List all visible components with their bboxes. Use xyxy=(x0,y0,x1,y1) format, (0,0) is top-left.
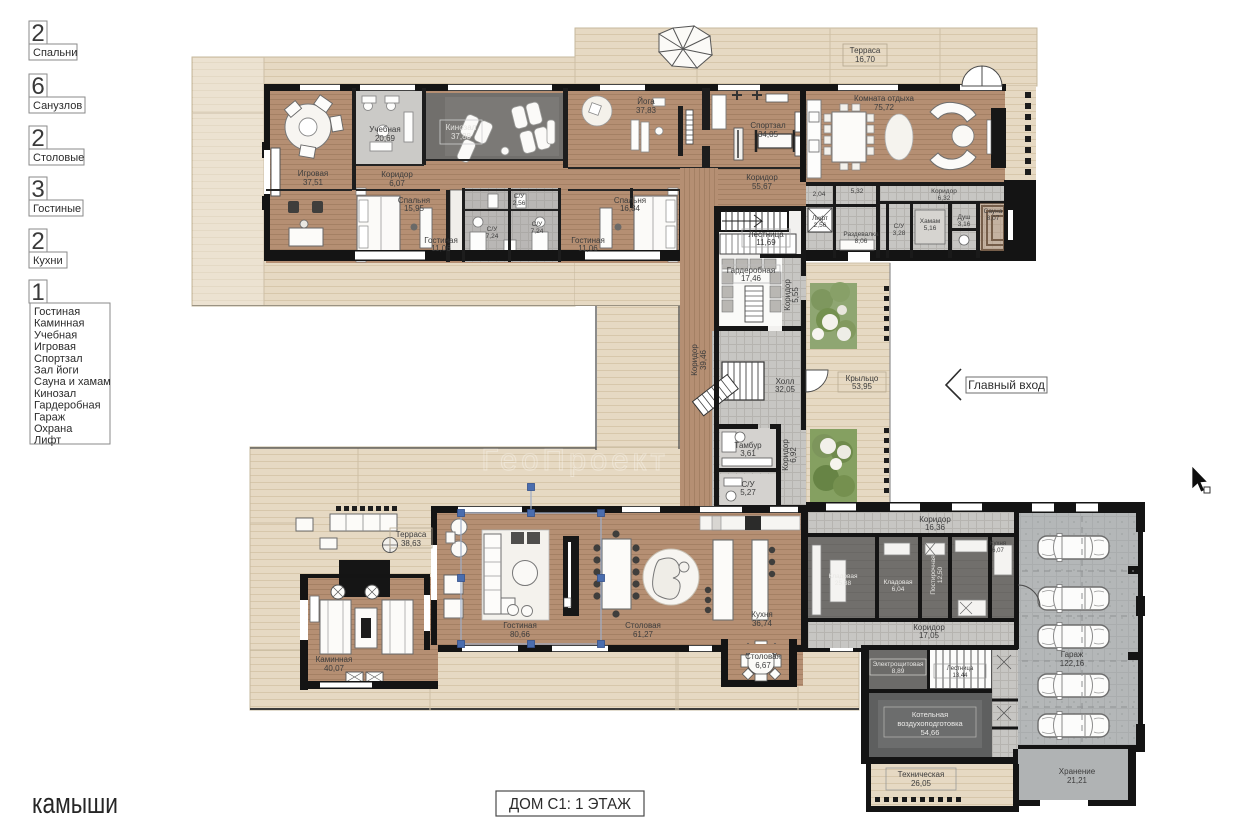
svg-text:2: 2 xyxy=(31,228,44,255)
svg-text:Лестница: Лестница xyxy=(947,666,974,672)
svg-text:Котельная: Котельная xyxy=(912,710,948,719)
svg-text:Коридор: Коридор xyxy=(931,188,957,195)
svg-text:воздухоподготовка: воздухоподготовка xyxy=(897,719,963,728)
svg-text:Сауна и хамам: Сауна и хамам xyxy=(34,376,111,388)
svg-text:Охрана: Охрана xyxy=(34,423,73,435)
svg-text:Учебная: Учебная xyxy=(369,125,400,134)
svg-text:Сауна: Сауна xyxy=(984,208,1003,215)
svg-text:Гостиная: Гостиная xyxy=(34,306,80,318)
svg-text:ГеоПроект: ГеоПроект xyxy=(481,442,668,477)
svg-text:6,04: 6,04 xyxy=(892,586,905,593)
svg-text:Кухня: Кухня xyxy=(990,541,1006,547)
svg-text:С/У: С/У xyxy=(514,193,526,200)
svg-text:15,95: 15,95 xyxy=(404,204,425,213)
svg-text:Столовые: Столовые xyxy=(33,152,84,164)
svg-text:2,56: 2,56 xyxy=(814,222,827,229)
svg-text:8,89: 8,89 xyxy=(892,668,905,675)
svg-text:16,36: 16,36 xyxy=(925,523,946,532)
svg-text:Терраса: Терраса xyxy=(396,530,427,539)
svg-text:Кухня: Кухня xyxy=(751,610,772,619)
svg-text:Кухни: Кухни xyxy=(33,255,63,267)
svg-text:С/У: С/У xyxy=(532,221,544,228)
svg-text:Кинозал: Кинозал xyxy=(34,388,76,400)
svg-text:7,24: 7,24 xyxy=(486,233,499,240)
svg-text:2,56: 2,56 xyxy=(513,200,526,207)
svg-text:54,66: 54,66 xyxy=(921,728,940,737)
svg-text:5,16: 5,16 xyxy=(924,225,937,232)
svg-text:Терраса: Терраса xyxy=(850,46,881,55)
svg-text:53,95: 53,95 xyxy=(852,382,873,391)
svg-text:6,07: 6,07 xyxy=(389,179,405,188)
svg-text:Спальни: Спальни xyxy=(33,47,77,59)
svg-text:Техническая: Техническая xyxy=(898,770,945,779)
svg-text:С/У: С/У xyxy=(487,226,499,233)
svg-text:40,07: 40,07 xyxy=(324,664,345,673)
svg-text:11,06: 11,06 xyxy=(578,244,598,253)
svg-text:Гостиная: Гостиная xyxy=(503,621,537,630)
svg-text:Душ: Душ xyxy=(957,214,970,221)
svg-text:Коридор: Коридор xyxy=(690,344,699,376)
svg-text:7,24: 7,24 xyxy=(531,228,544,235)
svg-text:3,28: 3,28 xyxy=(893,230,906,237)
svg-text:2,04: 2,04 xyxy=(813,191,826,198)
svg-text:6,32: 6,32 xyxy=(938,195,951,202)
svg-text:Гостиные: Гостиные xyxy=(33,203,81,215)
svg-text:Зал йоги: Зал йоги xyxy=(34,365,79,377)
svg-text:36,74: 36,74 xyxy=(752,619,773,628)
svg-text:Постирочная: Постирочная xyxy=(930,555,937,595)
svg-text:Кинозал: Кинозал xyxy=(446,123,477,132)
svg-text:Раздевалка: Раздевалка xyxy=(843,231,879,238)
svg-text:1: 1 xyxy=(31,279,44,306)
svg-text:122,16: 122,16 xyxy=(1060,659,1085,668)
svg-text:37,51: 37,51 xyxy=(303,178,324,187)
svg-text:Гардеробная: Гардеробная xyxy=(34,400,101,412)
svg-text:6,07: 6,07 xyxy=(992,548,1004,554)
svg-text:8,07: 8,07 xyxy=(987,215,1000,222)
svg-text:37,83: 37,83 xyxy=(636,106,657,115)
svg-text:5,27: 5,27 xyxy=(740,488,756,497)
svg-text:37,88: 37,88 xyxy=(451,132,472,141)
svg-text:Электрощитовая: Электрощитовая xyxy=(872,661,923,668)
svg-text:61,27: 61,27 xyxy=(633,630,654,639)
svg-text:6,67: 6,67 xyxy=(755,661,771,670)
svg-text:камыши: камыши xyxy=(32,788,118,820)
svg-text:20,69: 20,69 xyxy=(375,134,396,143)
svg-text:32,05: 32,05 xyxy=(775,385,796,394)
svg-text:Йога: Йога xyxy=(637,97,655,106)
svg-text:3: 3 xyxy=(31,176,44,203)
svg-text:Гараж: Гараж xyxy=(34,411,66,423)
svg-text:Столовая: Столовая xyxy=(745,652,781,661)
svg-text:Хамам: Хамам xyxy=(920,218,941,225)
svg-text:Лифт: Лифт xyxy=(34,435,61,447)
svg-text:Санузлов: Санузлов xyxy=(33,100,82,112)
svg-text:Столовая: Столовая xyxy=(625,621,661,630)
svg-text:Кладовая: Кладовая xyxy=(828,573,858,580)
svg-text:2: 2 xyxy=(31,20,44,47)
svg-text:6: 6 xyxy=(31,73,44,100)
svg-text:17,46: 17,46 xyxy=(741,274,762,283)
svg-text:Хранение: Хранение xyxy=(1059,767,1096,776)
svg-text:Гараж: Гараж xyxy=(1061,650,1084,659)
svg-text:3,16: 3,16 xyxy=(958,221,971,228)
svg-text:34,05: 34,05 xyxy=(758,130,779,139)
svg-text:75,72: 75,72 xyxy=(874,103,895,112)
svg-text:13,44: 13,44 xyxy=(952,673,968,679)
svg-text:Учебная: Учебная xyxy=(34,329,77,341)
svg-text:39,46: 39,46 xyxy=(699,349,708,370)
svg-text:2: 2 xyxy=(31,125,44,152)
svg-text:Спортзал: Спортзал xyxy=(750,121,786,130)
svg-text:11,69: 11,69 xyxy=(756,238,776,247)
svg-text:3,61: 3,61 xyxy=(740,449,756,458)
svg-text:25,88: 25,88 xyxy=(835,580,852,587)
svg-text:17,05: 17,05 xyxy=(919,631,940,640)
svg-text:Игровая: Игровая xyxy=(34,341,76,353)
svg-text:Каминная: Каминная xyxy=(34,318,84,330)
svg-text:5,55: 5,55 xyxy=(791,287,800,303)
svg-text:Комната отдыха: Комната отдыха xyxy=(854,94,915,103)
svg-text:16,70: 16,70 xyxy=(855,55,876,64)
svg-text:5,32: 5,32 xyxy=(851,188,864,195)
svg-text:Коридор: Коридор xyxy=(381,170,413,179)
svg-text:21,21: 21,21 xyxy=(1067,776,1088,785)
svg-text:С/У: С/У xyxy=(894,223,906,230)
svg-text:12,50: 12,50 xyxy=(937,566,944,583)
svg-text:Спортзал: Спортзал xyxy=(34,353,83,365)
svg-text:11,06: 11,06 xyxy=(431,244,451,253)
svg-text:38,63: 38,63 xyxy=(401,539,422,548)
svg-text:16,84: 16,84 xyxy=(620,204,641,213)
svg-text:55,67: 55,67 xyxy=(752,182,773,191)
svg-text:Коридор: Коридор xyxy=(746,173,778,182)
svg-text:80,66: 80,66 xyxy=(510,630,531,639)
svg-text:ДОМ С1: 1 ЭТАЖ: ДОМ С1: 1 ЭТАЖ xyxy=(509,796,631,813)
svg-text:6,92: 6,92 xyxy=(789,447,798,463)
svg-text:Каминная: Каминная xyxy=(316,655,353,664)
svg-text:Кладовая: Кладовая xyxy=(883,579,913,586)
svg-text:Главный вход: Главный вход xyxy=(968,378,1045,392)
svg-text:26,05: 26,05 xyxy=(911,779,932,788)
svg-text:Лифт: Лифт xyxy=(812,215,828,222)
svg-text:Игровая: Игровая xyxy=(298,169,329,178)
svg-text:8,06: 8,06 xyxy=(855,238,868,245)
